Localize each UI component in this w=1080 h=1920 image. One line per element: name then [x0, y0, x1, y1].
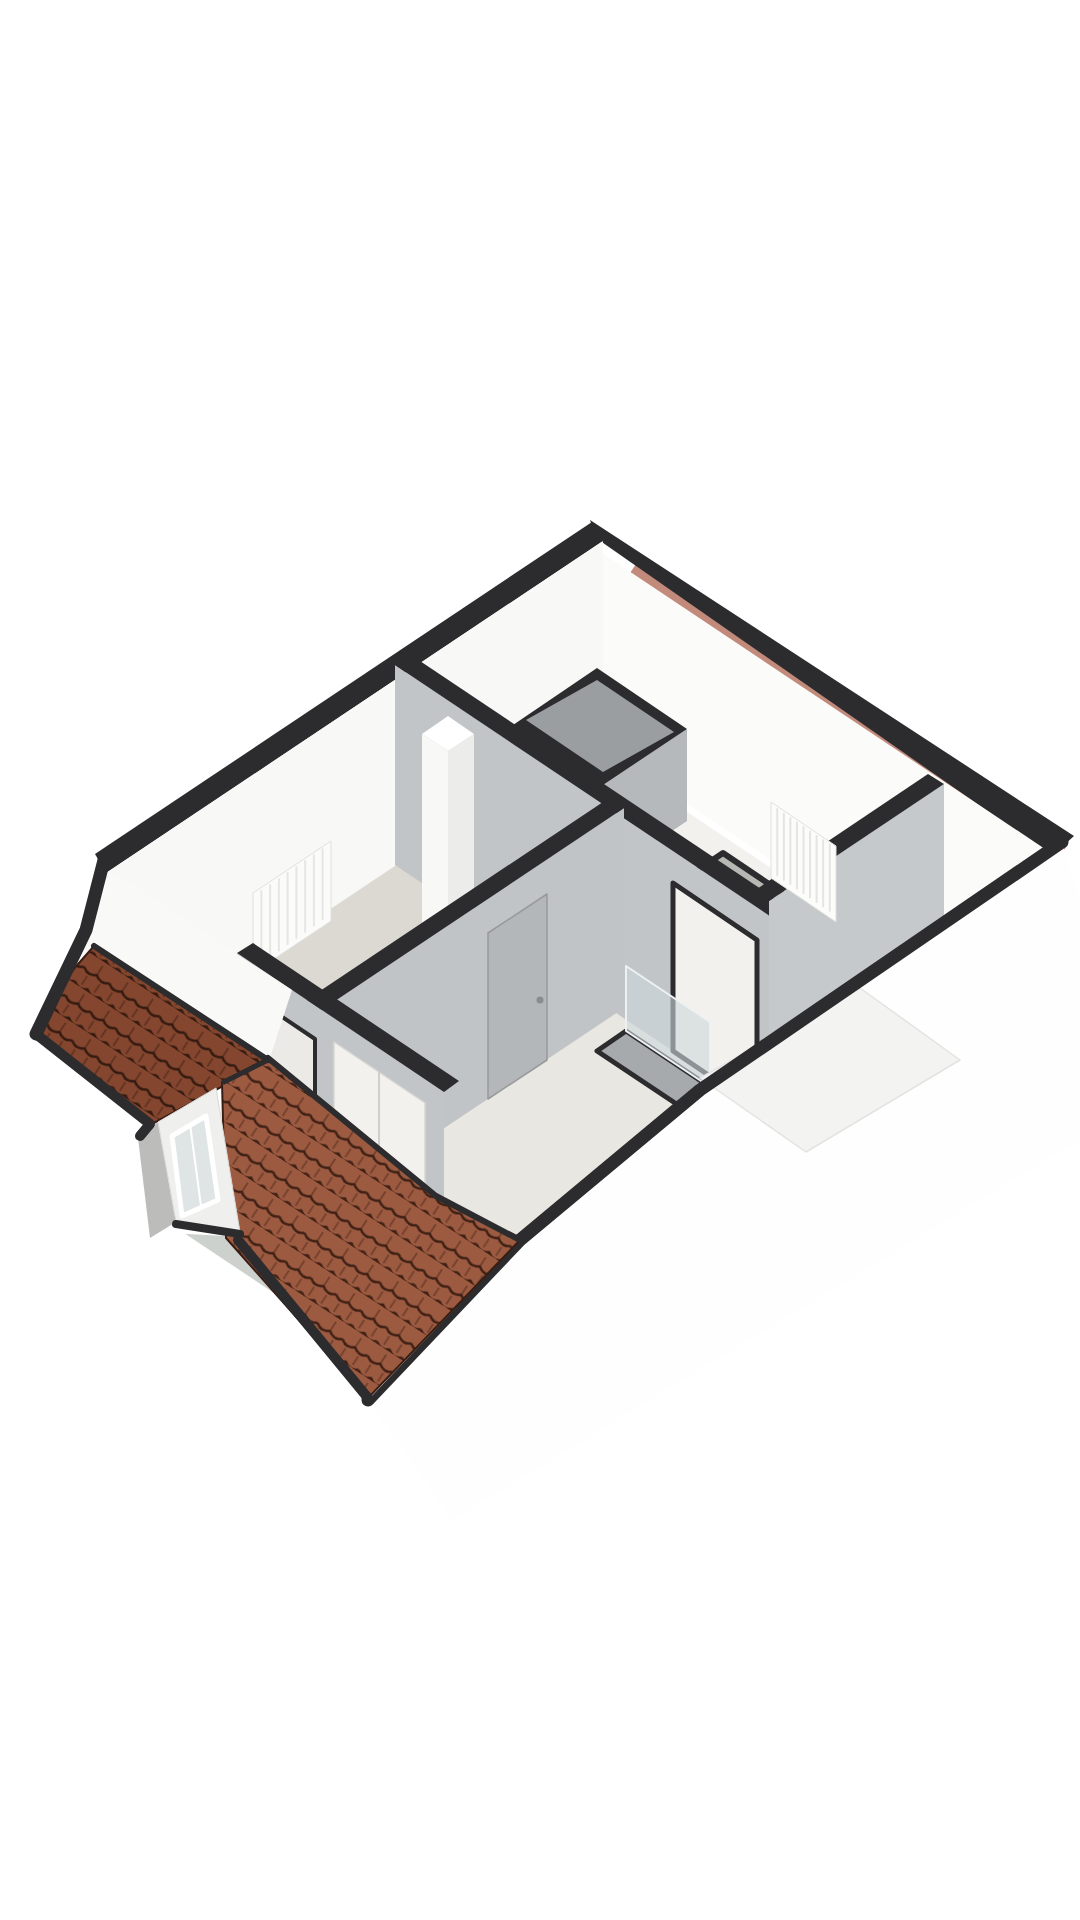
door-central-wall-handle [537, 997, 544, 1004]
floorplan-3d-svg [0, 0, 1080, 1920]
floorplan-3d-view [0, 0, 1080, 1920]
